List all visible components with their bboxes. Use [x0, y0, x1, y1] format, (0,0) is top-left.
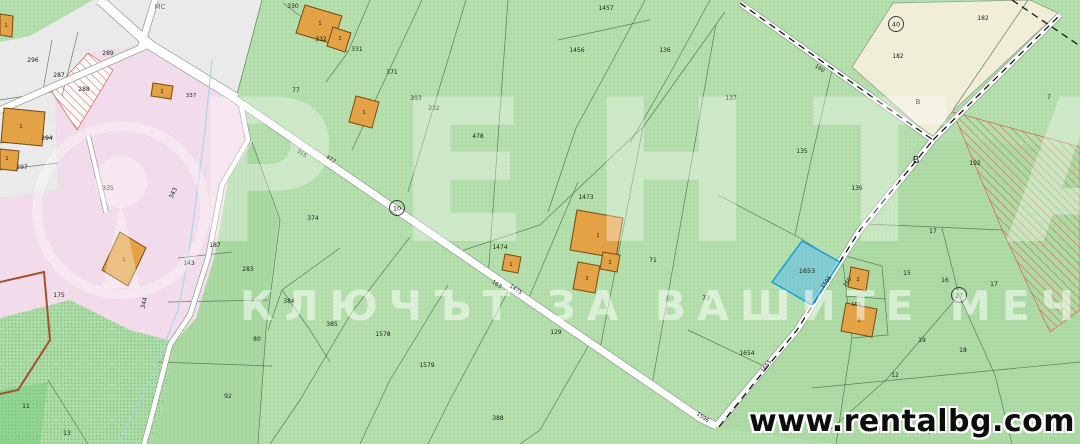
parcel-label: 129	[550, 329, 562, 336]
parcel-label: МС	[155, 3, 166, 11]
building-label: 2	[856, 277, 859, 283]
parcel-label: 296	[27, 57, 39, 64]
parcel-label: 80	[253, 336, 261, 343]
junction-number: 10	[393, 204, 401, 212]
cadastral-map[interactable]: 102740МС29628728828929429733534334417511…	[0, 0, 1080, 444]
parcel-label: 182	[892, 53, 904, 60]
parcel-label: 73	[702, 295, 710, 302]
parcel-label: 192	[969, 160, 981, 167]
building-label: 1	[509, 262, 512, 268]
parcel-label: 161	[851, 302, 861, 308]
parcel-label: 1654	[739, 350, 754, 357]
parcel-label: 374	[307, 215, 319, 222]
parcel-label: 297	[16, 164, 28, 171]
parcel-label: 18	[959, 347, 967, 354]
parcel-label: 1578	[375, 331, 390, 338]
parcel-label: 137	[725, 95, 737, 102]
parcel-label: 331	[351, 46, 363, 53]
parcel-label: 478	[472, 133, 484, 140]
parcel-label: 12	[891, 372, 899, 379]
parcel-label: В	[913, 155, 920, 166]
parcel-label: 139	[851, 185, 863, 192]
building-label: 2	[338, 36, 341, 42]
parcel-label: 393	[410, 95, 422, 102]
site-url[interactable]: www.rentalbg.com	[749, 404, 1075, 439]
parcel-label: 388	[492, 415, 504, 422]
parcel-label: 283	[242, 266, 254, 273]
parcel-label: 287	[53, 72, 65, 79]
parcel-label: 1474	[492, 244, 507, 251]
building-label: 1	[122, 257, 125, 263]
building-label: 2	[160, 89, 163, 95]
parcel-label: 92	[224, 393, 232, 400]
parcel-label: В	[916, 98, 921, 106]
junction-number: 40	[892, 20, 900, 28]
parcel-label: 77	[292, 87, 300, 94]
parcel-label: 182	[977, 15, 989, 22]
parcel-label: 135	[796, 148, 808, 155]
parcel-label: 175	[53, 292, 65, 299]
parcel-label: 335	[102, 185, 114, 192]
parcel-label: 1579	[419, 362, 434, 369]
parcel-label: 288	[78, 86, 90, 93]
zone-texture	[0, 382, 48, 444]
parcel-label: 187	[209, 242, 221, 249]
parcel-label: 7	[1047, 94, 1051, 101]
building-label: 2	[608, 260, 611, 266]
parcel-label: 1653	[799, 267, 816, 275]
parcel-label: 136	[659, 47, 671, 54]
parcel-label: 289	[102, 50, 114, 57]
parcel-label: 143	[183, 260, 195, 267]
parcel-label: 332	[315, 36, 327, 43]
parcel-label: 1473	[578, 194, 593, 201]
parcel-label: 337	[186, 93, 197, 99]
parcel-label: 294	[41, 135, 53, 142]
building-label: 1	[318, 21, 321, 27]
parcel-label: 17	[929, 228, 937, 235]
building-label: 3	[857, 318, 860, 324]
building-label: 3	[585, 276, 588, 282]
parcel-label: 11	[22, 403, 30, 410]
building-label: 1	[5, 156, 8, 162]
parcel-label: 16	[941, 277, 949, 284]
building-label: 1	[596, 233, 599, 239]
parcel-label: 330	[287, 3, 299, 10]
parcel-label: 232	[428, 105, 440, 112]
parcel-label: 19	[918, 337, 926, 344]
building	[1, 108, 45, 146]
parcel-label: 17	[990, 281, 998, 288]
building-label: 1	[19, 124, 22, 130]
junction-number: 27	[955, 291, 963, 299]
parcel-label: 15	[903, 270, 911, 277]
parcel-label: 1457	[598, 5, 613, 12]
parcel-label: 71	[649, 257, 657, 264]
parcel-label: 1456	[569, 47, 584, 54]
parcel-label: 384	[283, 298, 295, 305]
parcel-label: 13	[63, 430, 71, 437]
parcel-label: 385	[326, 321, 338, 328]
building-label: 1	[362, 110, 365, 116]
building-label: 1	[4, 23, 7, 29]
parcel-label: 371	[386, 69, 398, 76]
map-viewport[interactable]: 102740МС29628728828929429733534334417511…	[0, 0, 1080, 444]
